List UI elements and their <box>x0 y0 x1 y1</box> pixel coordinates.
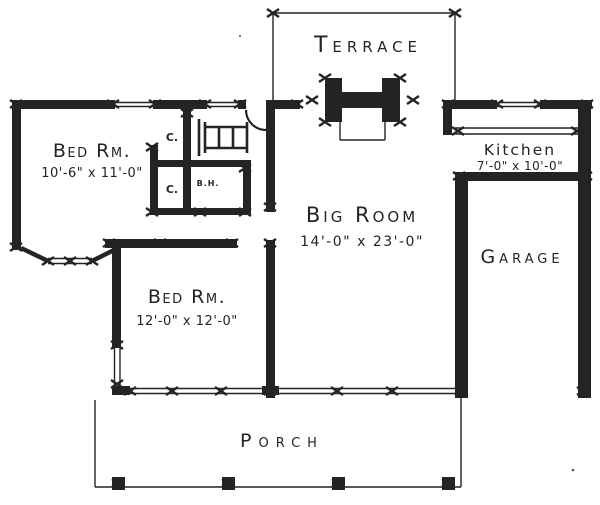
door-swing-arc <box>246 110 266 130</box>
paper-speck <box>572 469 575 472</box>
fireplace <box>325 78 400 140</box>
wall-closet-divider <box>150 160 251 167</box>
bedroom2-label: Bed Rm. <box>148 286 226 308</box>
wall-garage-west <box>455 181 468 398</box>
bedroom1-dims: 10'-6" x 11'-0" <box>41 166 143 181</box>
window-kitchen-north <box>497 103 540 107</box>
floor-plan-svg: Terrace Bed Rm. 10'-6" x 11'-0" C. C. B.… <box>0 0 600 505</box>
wall-bedroom1-west <box>12 100 21 250</box>
kitchen-label: Kitchen <box>484 141 556 159</box>
closet-lower-label: C. <box>166 183 178 196</box>
garage-label: Garage <box>480 246 563 268</box>
window-south-bigroom <box>275 389 455 394</box>
wall-top-left <box>12 100 115 109</box>
bedroom2-dims: 12'-0" x 12'-0" <box>136 314 238 329</box>
kitchen-dims: 7'-0" x 10'-0" <box>477 159 563 173</box>
window-south-bedroom2 <box>130 389 266 394</box>
porch-label: Porch <box>240 430 324 452</box>
big-room-dims: 14'-0" x 23'-0" <box>300 234 424 250</box>
big-room-label: Big Room <box>306 203 418 227</box>
wall-bigroom-west-upper <box>266 109 275 212</box>
window-top-1 <box>115 103 153 107</box>
bath-label: B.H. <box>197 179 220 188</box>
porch-posts <box>112 477 455 490</box>
hearth-outline <box>340 122 385 140</box>
wall-kitchen-west <box>443 109 452 135</box>
wall-garage-east <box>578 109 591 398</box>
window-bedroom2-west <box>115 348 121 386</box>
window-top-2 <box>207 103 238 107</box>
bedroom1-label: Bed Rm. <box>53 140 131 162</box>
floor-plan: Terrace Bed Rm. 10'-6" x 11'-0" C. C. B.… <box>0 0 600 505</box>
window-kitchen-band <box>455 128 580 134</box>
paper-speck <box>239 35 241 37</box>
wall-closet-west <box>150 145 158 215</box>
wall-bedroom2-west <box>112 248 121 348</box>
attic-ladder <box>199 119 247 156</box>
wall-kitchen-garage-divider <box>455 172 591 181</box>
terrace-label: Terrace <box>313 33 422 58</box>
closet-upper-label: C. <box>166 131 178 144</box>
wall-bigroom-west-lower <box>266 240 275 398</box>
wall-bedroom2-north <box>105 239 237 248</box>
wall-junction-ticks <box>10 9 593 395</box>
